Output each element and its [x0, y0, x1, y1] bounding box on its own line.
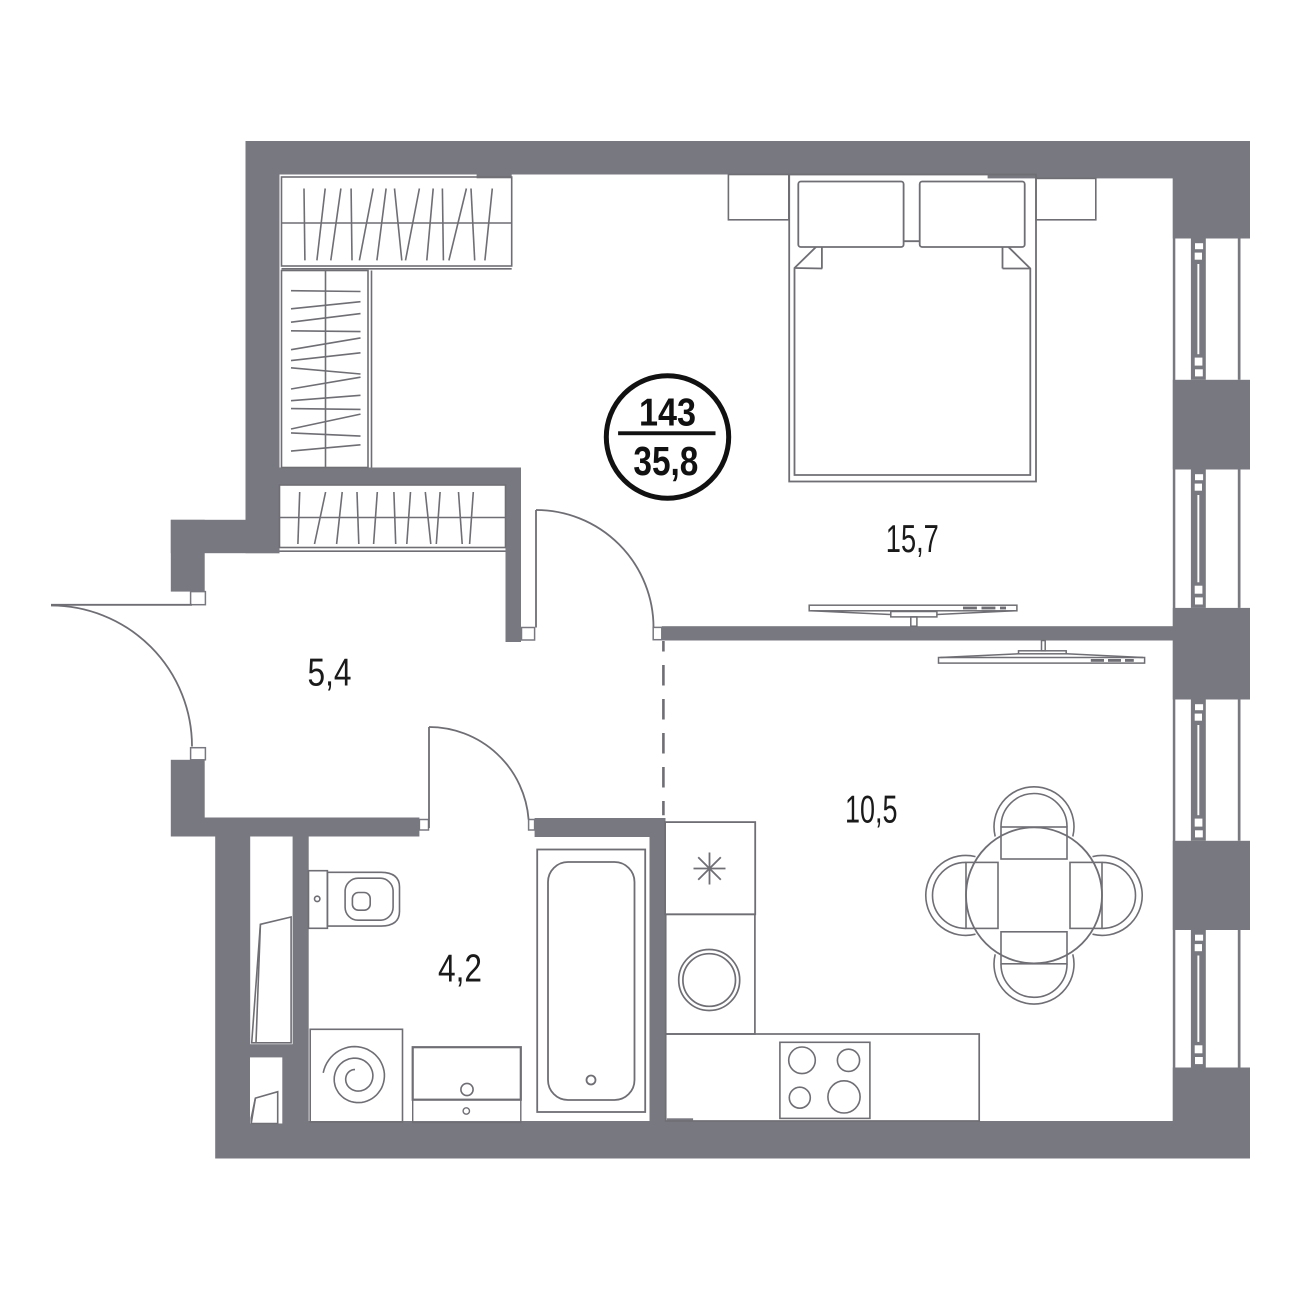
svg-text:143: 143: [639, 391, 696, 434]
svg-text:35,8: 35,8: [633, 438, 698, 484]
svg-text:5,4: 5,4: [308, 651, 352, 694]
svg-text:4,2: 4,2: [438, 948, 482, 991]
svg-text:10,5: 10,5: [845, 789, 898, 832]
svg-text:15,7: 15,7: [886, 518, 939, 561]
